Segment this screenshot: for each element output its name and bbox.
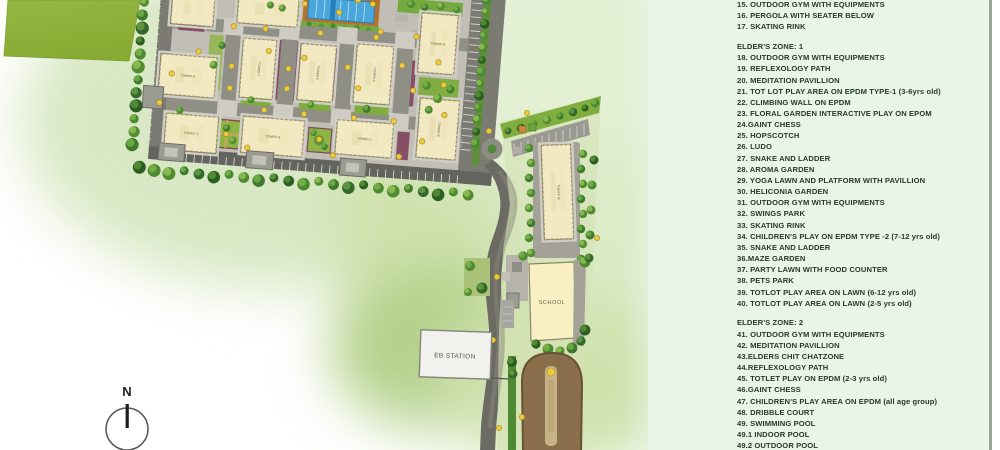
svg-text:SCHOOL: SCHOOL	[539, 300, 566, 306]
svg-text:N: N	[122, 384, 131, 399]
svg-text:EB STATION: EB STATION	[434, 352, 476, 360]
svg-text:TOWER M: TOWER M	[556, 184, 561, 200]
